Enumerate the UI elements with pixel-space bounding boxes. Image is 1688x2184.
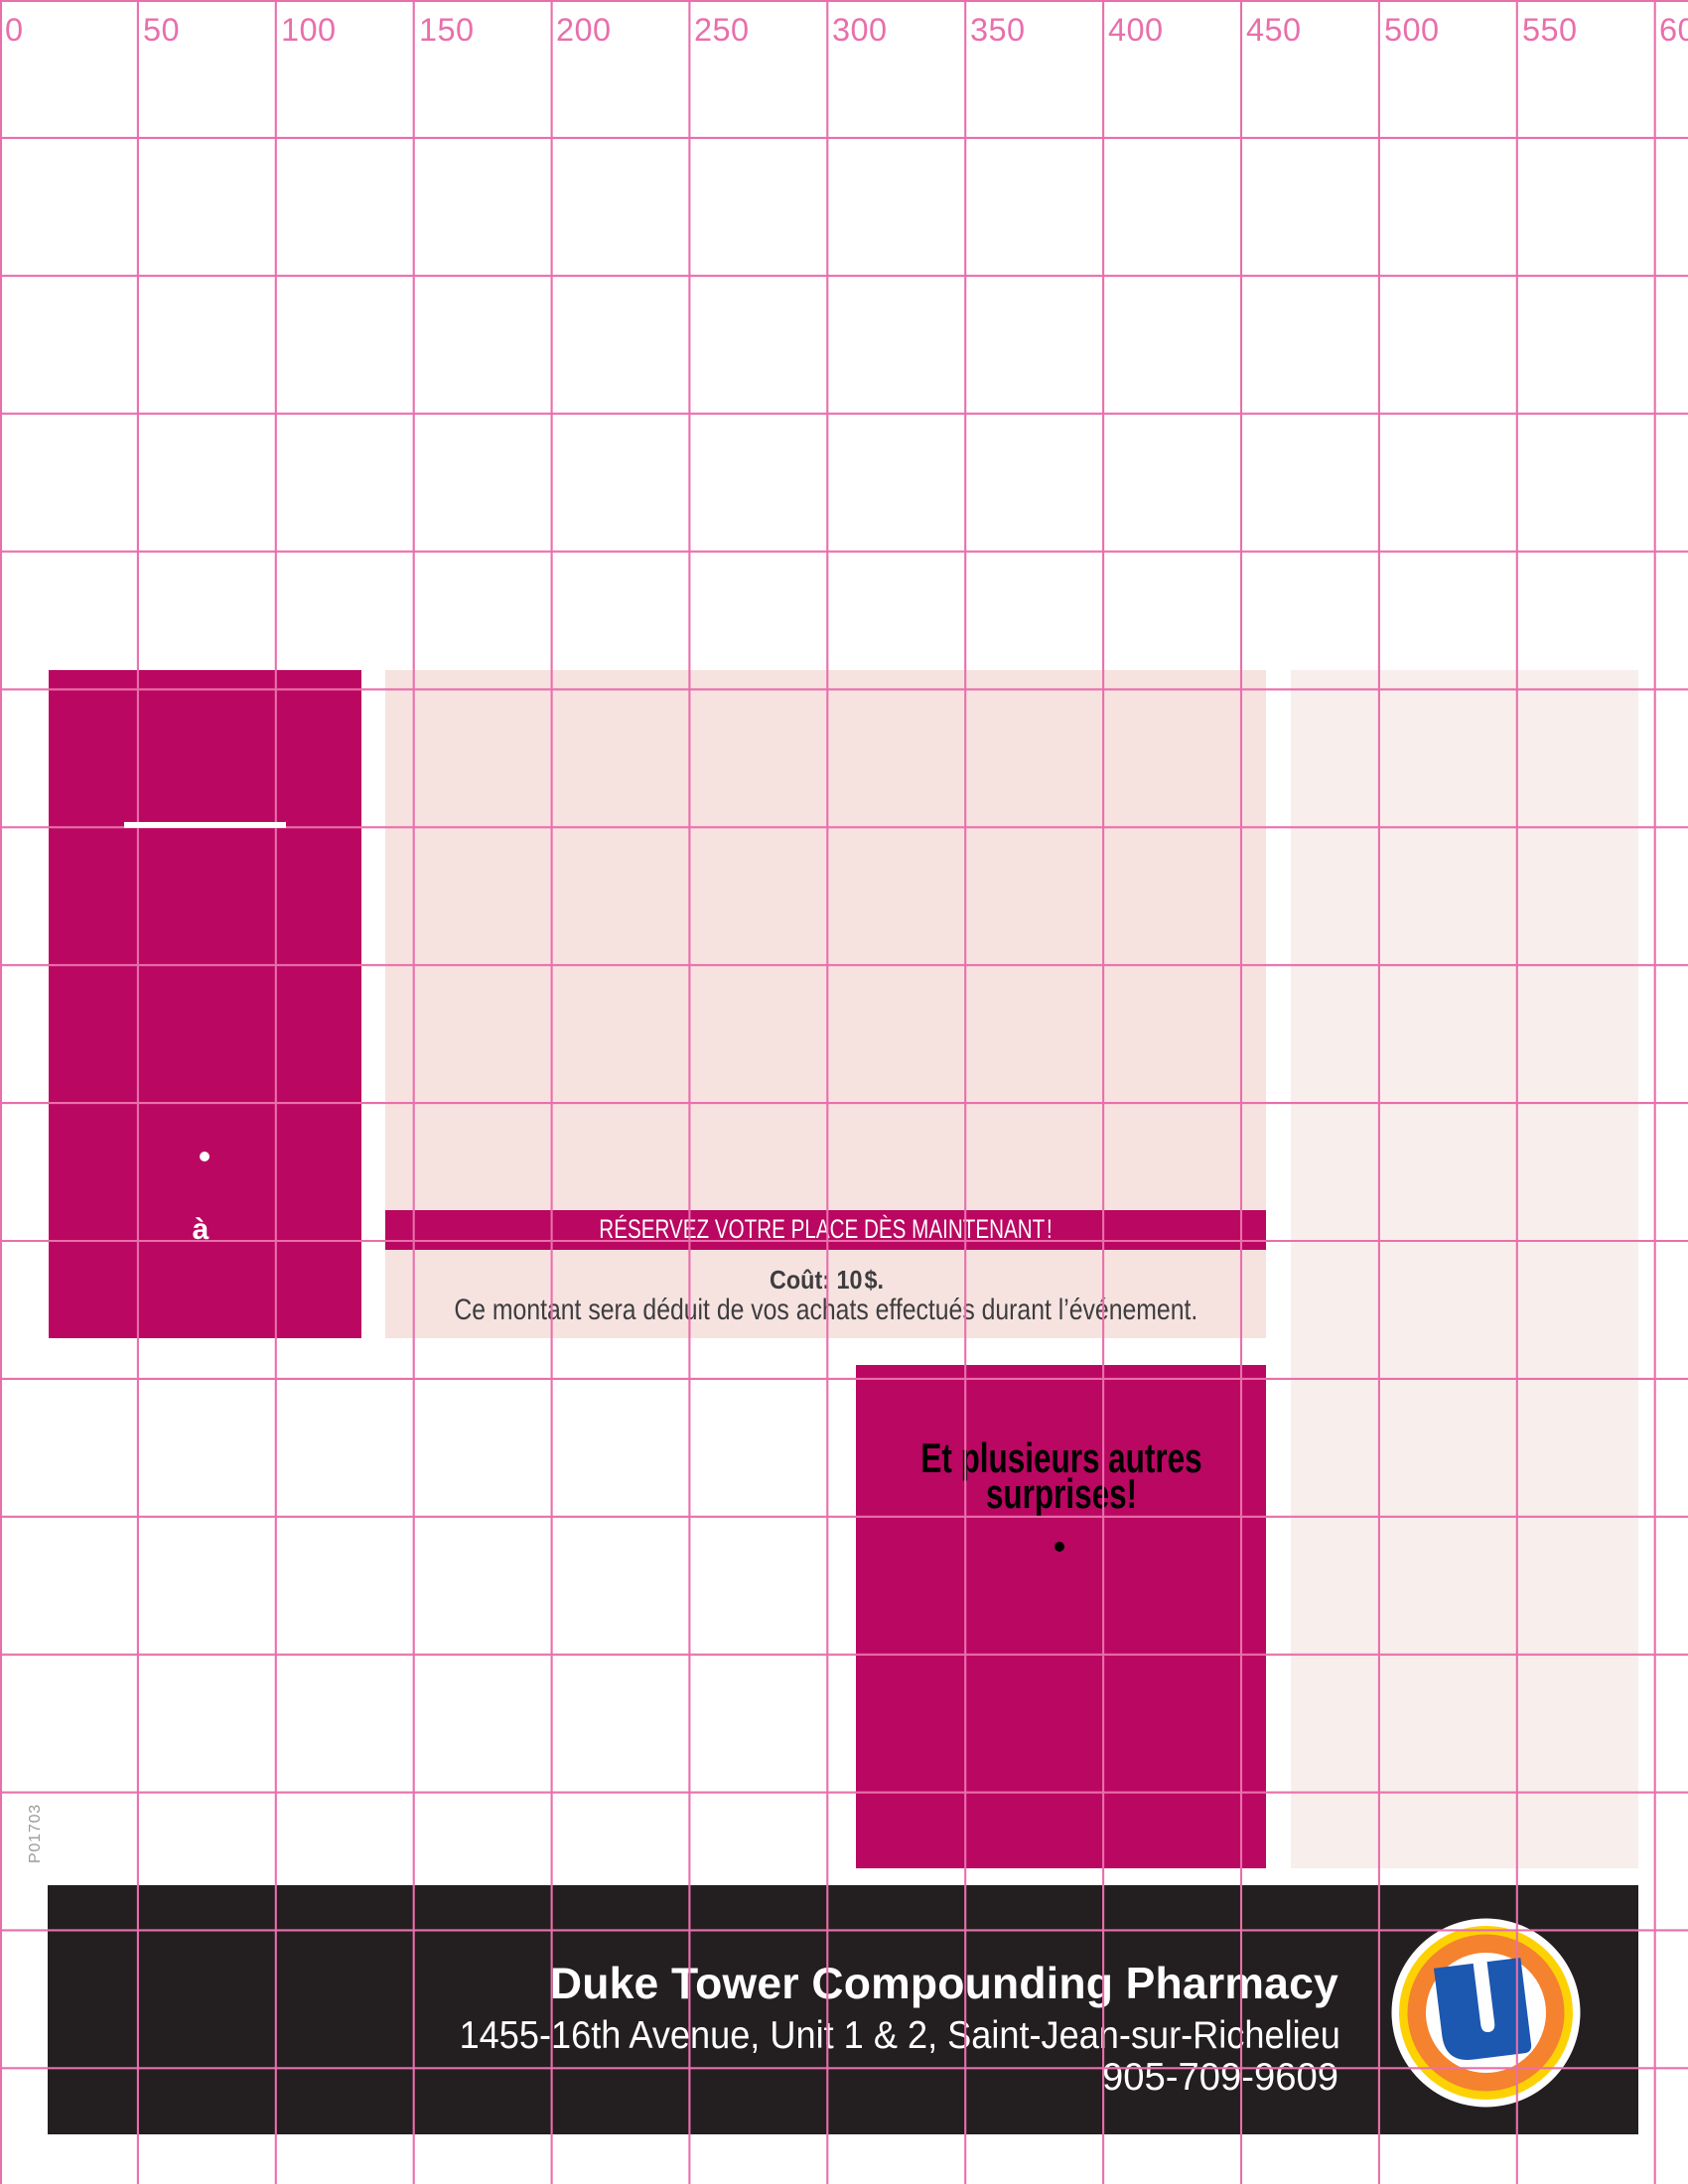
svg-text:100: 100 xyxy=(281,12,336,48)
svg-text:300: 300 xyxy=(832,12,887,48)
svg-text:450: 450 xyxy=(1246,12,1301,48)
svg-text:250: 250 xyxy=(694,12,749,48)
svg-text:150: 150 xyxy=(419,12,474,48)
svg-text:550: 550 xyxy=(1522,12,1577,48)
svg-text:600: 600 xyxy=(1659,12,1688,48)
svg-text:0: 0 xyxy=(5,12,23,48)
svg-text:50: 50 xyxy=(143,12,180,48)
svg-text:500: 500 xyxy=(1384,12,1439,48)
svg-text:350: 350 xyxy=(970,12,1025,48)
svg-text:200: 200 xyxy=(556,12,611,48)
svg-text:400: 400 xyxy=(1108,12,1163,48)
